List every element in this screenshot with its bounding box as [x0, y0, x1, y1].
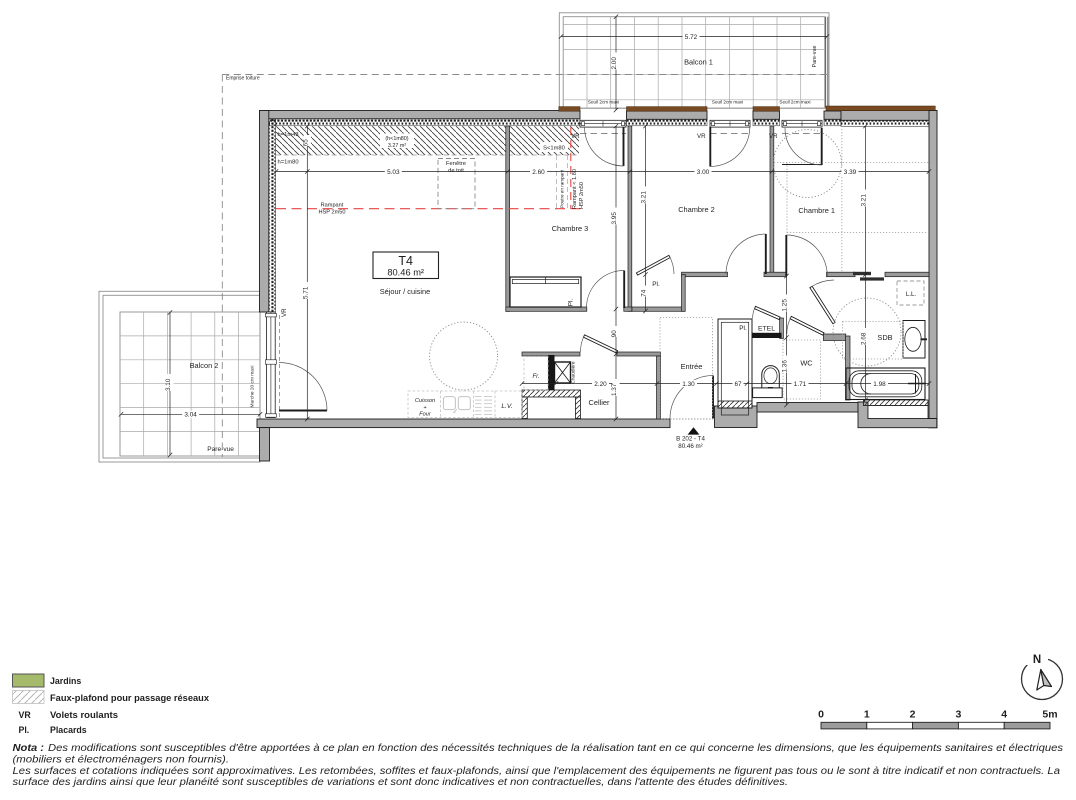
- svg-text:VR: VR: [769, 133, 778, 140]
- svg-text:Poutre en rampant: Poutre en rampant: [560, 169, 565, 208]
- svg-text:3.00: 3.00: [697, 169, 710, 176]
- svg-text:3.21: 3.21: [641, 191, 648, 204]
- svg-text:Placards: Placards: [50, 725, 87, 735]
- svg-text:VR: VR: [281, 308, 288, 317]
- svg-text:(h<1m80): (h<1m80): [385, 136, 408, 142]
- svg-text:Chambre 2: Chambre 2: [678, 205, 715, 214]
- svg-text:N: N: [1033, 654, 1041, 666]
- svg-text:Nota :: Nota :: [13, 743, 45, 754]
- svg-text:Les surfaces et cotations indi: Les surfaces et cotations indiquées sont…: [13, 766, 1061, 777]
- svg-text:Pare-vue: Pare-vue: [812, 46, 818, 68]
- svg-text:Emprise toiture: Emprise toiture: [226, 76, 260, 82]
- svg-text:Cuisson: Cuisson: [415, 398, 435, 404]
- svg-text:1.36: 1.36: [782, 360, 789, 373]
- svg-text:de toit: de toit: [448, 168, 464, 174]
- svg-text:1.98: 1.98: [873, 381, 886, 388]
- svg-text:Balcon 1: Balcon 1: [684, 58, 713, 67]
- svg-text:3.04: 3.04: [184, 412, 197, 419]
- svg-text:Fenêtre: Fenêtre: [446, 161, 466, 167]
- svg-text:5.71: 5.71: [302, 286, 309, 299]
- svg-text:5m: 5m: [1042, 709, 1057, 721]
- svg-text:Chaudière: Chaudière: [571, 361, 577, 383]
- svg-text:Seuil 2cm maxi: Seuil 2cm maxi: [588, 100, 619, 105]
- svg-text:65: 65: [302, 139, 309, 147]
- svg-text:3.27 m²: 3.27 m²: [388, 143, 406, 149]
- svg-text:L.V.: L.V.: [501, 403, 512, 410]
- svg-text:Chambre 3: Chambre 3: [552, 224, 589, 233]
- svg-text:5.72: 5.72: [685, 34, 698, 41]
- svg-text:Cellier: Cellier: [589, 398, 610, 407]
- svg-text:Fr.: Fr.: [532, 374, 539, 380]
- svg-text:0: 0: [818, 709, 824, 721]
- svg-text:74: 74: [641, 289, 648, 297]
- svg-text:surface des jardins ainsi que: surface des jardins ainsi que leur plané…: [13, 777, 789, 788]
- svg-text:SDB: SDB: [877, 333, 892, 342]
- svg-text:4: 4: [1001, 709, 1007, 721]
- svg-text:S<1m80: S<1m80: [543, 146, 565, 152]
- svg-text:Pl.: Pl.: [739, 325, 747, 332]
- svg-text:HSP 2m50: HSP 2m50: [319, 210, 346, 216]
- svg-text:Chambre 1: Chambre 1: [798, 206, 835, 215]
- svg-text:90: 90: [611, 330, 618, 338]
- svg-text:Seuil 2cm maxi: Seuil 2cm maxi: [779, 100, 810, 105]
- svg-text:1.25: 1.25: [782, 299, 789, 312]
- svg-text:Marche 20 cm maxi: Marche 20 cm maxi: [250, 366, 256, 408]
- svg-text:VR: VR: [697, 133, 706, 140]
- svg-text:Pl.: Pl.: [567, 299, 574, 307]
- svg-text:B 202 - T4: B 202 - T4: [676, 436, 705, 443]
- svg-text:Séjour / cuisine: Séjour / cuisine: [380, 287, 431, 296]
- svg-text:Volets roulants: Volets roulants: [50, 710, 118, 720]
- svg-text:2.60: 2.60: [532, 169, 545, 176]
- svg-text:3: 3: [955, 709, 961, 721]
- svg-text:1.30: 1.30: [682, 381, 695, 388]
- svg-text:3.95: 3.95: [611, 212, 618, 225]
- svg-text:3.39: 3.39: [844, 169, 857, 176]
- svg-text:1.37: 1.37: [611, 383, 618, 396]
- svg-text:Pare-vue: Pare-vue: [207, 446, 234, 453]
- svg-text:Rampant < 1.80: Rampant < 1.80: [572, 169, 578, 209]
- svg-text:5.03: 5.03: [387, 169, 400, 176]
- svg-text:2.00: 2.00: [611, 57, 618, 70]
- svg-text:L.L.: L.L.: [906, 291, 917, 298]
- svg-text:h=1m80: h=1m80: [278, 160, 299, 166]
- svg-text:3.10: 3.10: [165, 378, 172, 391]
- svg-text:Balcon 2: Balcon 2: [190, 361, 219, 370]
- svg-text:80.46 m²: 80.46 m²: [678, 443, 702, 450]
- svg-text:3.21: 3.21: [861, 194, 868, 207]
- svg-text:67: 67: [734, 381, 742, 388]
- svg-text:Rampant: Rampant: [321, 203, 344, 209]
- svg-text:Seuil 2cm maxi: Seuil 2cm maxi: [712, 100, 743, 105]
- svg-text:T4: T4: [398, 254, 413, 268]
- svg-text:VR: VR: [571, 133, 580, 140]
- svg-text:ETEL: ETEL: [758, 326, 775, 333]
- svg-text:Pl.: Pl.: [19, 725, 30, 735]
- svg-text:HSP 2m50: HSP 2m50: [579, 182, 585, 209]
- svg-text:Faux-plafond pour passage rése: Faux-plafond pour passage réseaux: [50, 693, 209, 703]
- svg-text:2.20: 2.20: [594, 381, 607, 388]
- svg-text:(mobiliers et électroménagers: (mobiliers et électroménagers non fourni…: [13, 754, 230, 765]
- svg-text:Des modifications sont suscept: Des modifications sont susceptibles d'êt…: [48, 743, 1063, 754]
- svg-text:2.68: 2.68: [861, 332, 868, 345]
- svg-text:80.46 m²: 80.46 m²: [387, 268, 424, 278]
- svg-text:Pl.: Pl.: [652, 281, 660, 288]
- svg-text:1: 1: [864, 709, 870, 721]
- svg-text:2: 2: [910, 709, 916, 721]
- svg-text:Four: Four: [419, 412, 432, 418]
- svg-text:1.71: 1.71: [794, 381, 807, 388]
- svg-text:Entrée: Entrée: [681, 362, 703, 371]
- svg-text:VR: VR: [19, 710, 32, 720]
- svg-text:WC: WC: [800, 359, 813, 368]
- svg-text:Jardins: Jardins: [50, 676, 81, 686]
- svg-text:h=1m43: h=1m43: [278, 132, 299, 138]
